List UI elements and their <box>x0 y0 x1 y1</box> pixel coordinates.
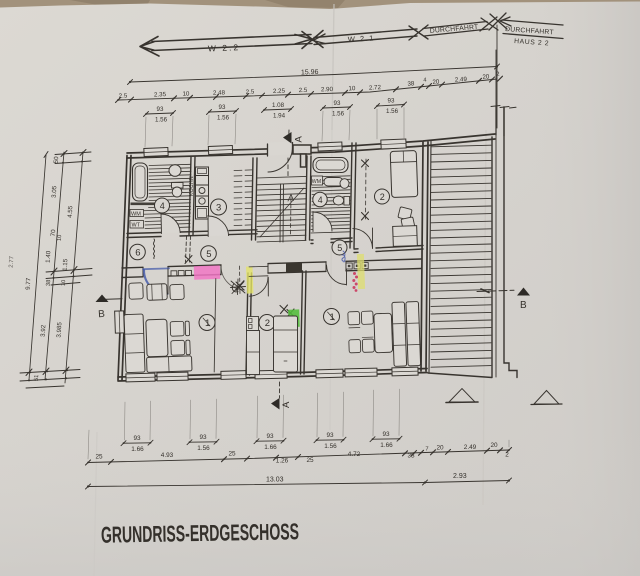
svg-text:4.72: 4.72 <box>348 451 361 458</box>
svg-text:3.985: 3.985 <box>55 321 63 337</box>
svg-text:1.56: 1.56 <box>155 117 168 124</box>
svg-text:10: 10 <box>182 90 190 97</box>
svg-text:4.55: 4.55 <box>67 205 75 218</box>
svg-text:5: 5 <box>337 243 342 253</box>
svg-text:15.96: 15.96 <box>301 69 319 77</box>
svg-text:2.49: 2.49 <box>464 444 477 451</box>
svg-text:2.93: 2.93 <box>453 473 467 480</box>
svg-text:2.77: 2.77 <box>9 255 16 268</box>
svg-text:1.56: 1.56 <box>332 111 345 118</box>
svg-text:10: 10 <box>348 85 356 92</box>
svg-text:38: 38 <box>407 453 415 460</box>
svg-text:W 2.2: W 2.2 <box>208 42 241 53</box>
svg-text:93: 93 <box>382 431 390 438</box>
svg-text:5: 5 <box>206 249 211 260</box>
svg-text:20: 20 <box>490 442 498 449</box>
svg-text:20: 20 <box>436 445 444 452</box>
svg-text:1.56: 1.56 <box>197 445 210 452</box>
svg-text:GRUNDRISS-ERDGESCHOSS: GRUNDRISS-ERDGESCHOSS <box>101 518 299 547</box>
svg-text:2.5: 2.5 <box>119 92 128 99</box>
svg-text:2.35: 2.35 <box>154 91 167 98</box>
svg-text:93: 93 <box>388 98 395 105</box>
svg-text:10: 10 <box>61 280 67 287</box>
svg-text:2.48: 2.48 <box>213 89 226 96</box>
svg-text:50: 50 <box>53 156 61 164</box>
svg-text:25: 25 <box>228 450 236 457</box>
svg-text:B: B <box>520 300 527 311</box>
svg-text:25: 25 <box>306 457 314 464</box>
svg-text:9.77: 9.77 <box>25 277 33 290</box>
svg-text:1.56: 1.56 <box>386 108 399 115</box>
svg-text:4: 4 <box>318 195 323 205</box>
svg-text:WM: WM <box>131 212 141 218</box>
svg-text:2.49: 2.49 <box>455 76 468 84</box>
svg-text:2: 2 <box>265 318 270 329</box>
svg-text:WM: WM <box>312 179 321 185</box>
svg-text:7: 7 <box>425 447 428 453</box>
svg-text:1.56: 1.56 <box>324 443 337 450</box>
svg-text:A: A <box>294 136 305 143</box>
svg-text:6: 6 <box>135 248 140 259</box>
svg-text:2.25: 2.25 <box>273 88 286 95</box>
svg-text:93: 93 <box>266 433 274 440</box>
svg-text:2: 2 <box>380 192 385 202</box>
svg-text:38: 38 <box>407 80 415 88</box>
svg-text:1.66: 1.66 <box>264 444 277 451</box>
svg-text:KOCHN: KOCHN <box>189 176 195 196</box>
svg-text:1.66: 1.66 <box>131 446 144 453</box>
svg-text:1.56: 1.56 <box>217 115 230 122</box>
svg-text:2.72: 2.72 <box>369 84 382 92</box>
svg-text:2: 2 <box>505 452 509 459</box>
svg-text:4.93: 4.93 <box>161 452 174 459</box>
svg-text:2.5: 2.5 <box>246 89 255 96</box>
svg-text:1.40: 1.40 <box>45 250 53 263</box>
svg-text:93: 93 <box>157 106 164 113</box>
svg-text:25: 25 <box>95 454 103 461</box>
svg-text:3.05: 3.05 <box>51 185 59 198</box>
svg-text:20: 20 <box>482 73 490 81</box>
svg-text:W 2.1: W 2.1 <box>348 33 376 44</box>
svg-text:2.90: 2.90 <box>321 86 334 93</box>
svg-text:93: 93 <box>326 432 334 439</box>
svg-text:70: 70 <box>50 229 58 237</box>
svg-text:1.66: 1.66 <box>380 442 393 449</box>
svg-text:10: 10 <box>57 235 63 242</box>
svg-text:3: 3 <box>216 203 221 214</box>
svg-text:51: 51 <box>34 375 40 382</box>
svg-text:B: B <box>98 309 106 320</box>
svg-text:4: 4 <box>423 77 427 83</box>
svg-text:13.03: 13.03 <box>266 477 284 484</box>
svg-text:38: 38 <box>46 280 52 287</box>
svg-text:93: 93 <box>133 435 141 442</box>
svg-text:93: 93 <box>334 100 341 107</box>
svg-text:2.5: 2.5 <box>299 87 308 94</box>
svg-text:4: 4 <box>160 201 165 211</box>
svg-text:A: A <box>281 401 292 408</box>
svg-text:93: 93 <box>199 434 207 441</box>
svg-text:1.94: 1.94 <box>273 113 286 120</box>
svg-text:93: 93 <box>219 104 226 111</box>
svg-text:1.08: 1.08 <box>272 102 285 109</box>
svg-text:1.26: 1.26 <box>276 458 289 465</box>
svg-text:3.92: 3.92 <box>40 324 48 337</box>
svg-text:WT: WT <box>132 223 141 229</box>
svg-text:1.15: 1.15 <box>62 258 70 271</box>
svg-text:20: 20 <box>432 79 440 87</box>
